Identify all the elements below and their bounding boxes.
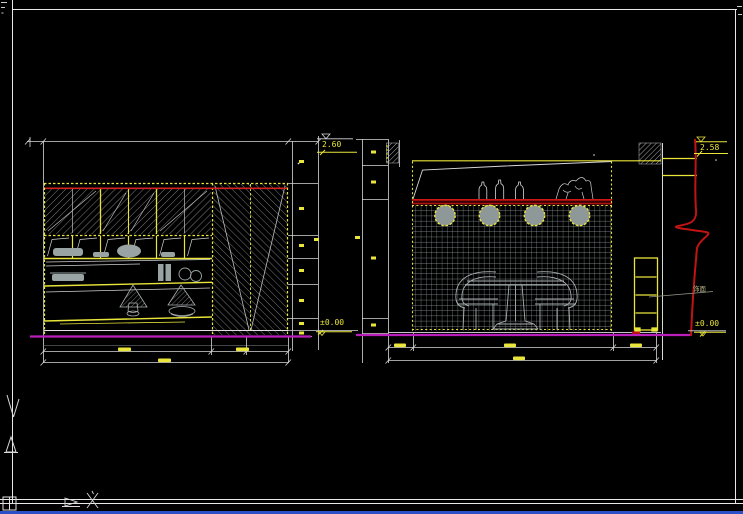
right-level-symbols bbox=[688, 137, 728, 337]
level-annotation-right-top: 2.58 bbox=[700, 144, 719, 152]
drawing-canvas bbox=[0, 0, 743, 514]
grade-break-line bbox=[676, 139, 709, 336]
left-level-symbols bbox=[316, 134, 357, 336]
level-annotation-left-bottom: ±0.00 bbox=[320, 319, 344, 327]
ucs-y-axis-icon bbox=[4, 395, 19, 453]
decor-plant bbox=[556, 178, 593, 200]
ladder-shelf bbox=[635, 258, 658, 331]
left-elevation-cabinet bbox=[44, 183, 288, 336]
paper-corner-ticks bbox=[1, 3, 742, 15]
level-annotation-right-bottom: ±0.00 bbox=[695, 320, 719, 328]
level-annotation-left-top: 2.60 bbox=[322, 141, 341, 149]
cad-viewport[interactable]: 2.60 ±0.00 2.58 ±0.00 饰面 bbox=[0, 0, 743, 514]
paper-frame bbox=[0, 0, 743, 504]
red-dash bbox=[632, 332, 640, 334]
material-note-label: 饰面 bbox=[693, 286, 706, 293]
display-decor bbox=[120, 285, 195, 317]
